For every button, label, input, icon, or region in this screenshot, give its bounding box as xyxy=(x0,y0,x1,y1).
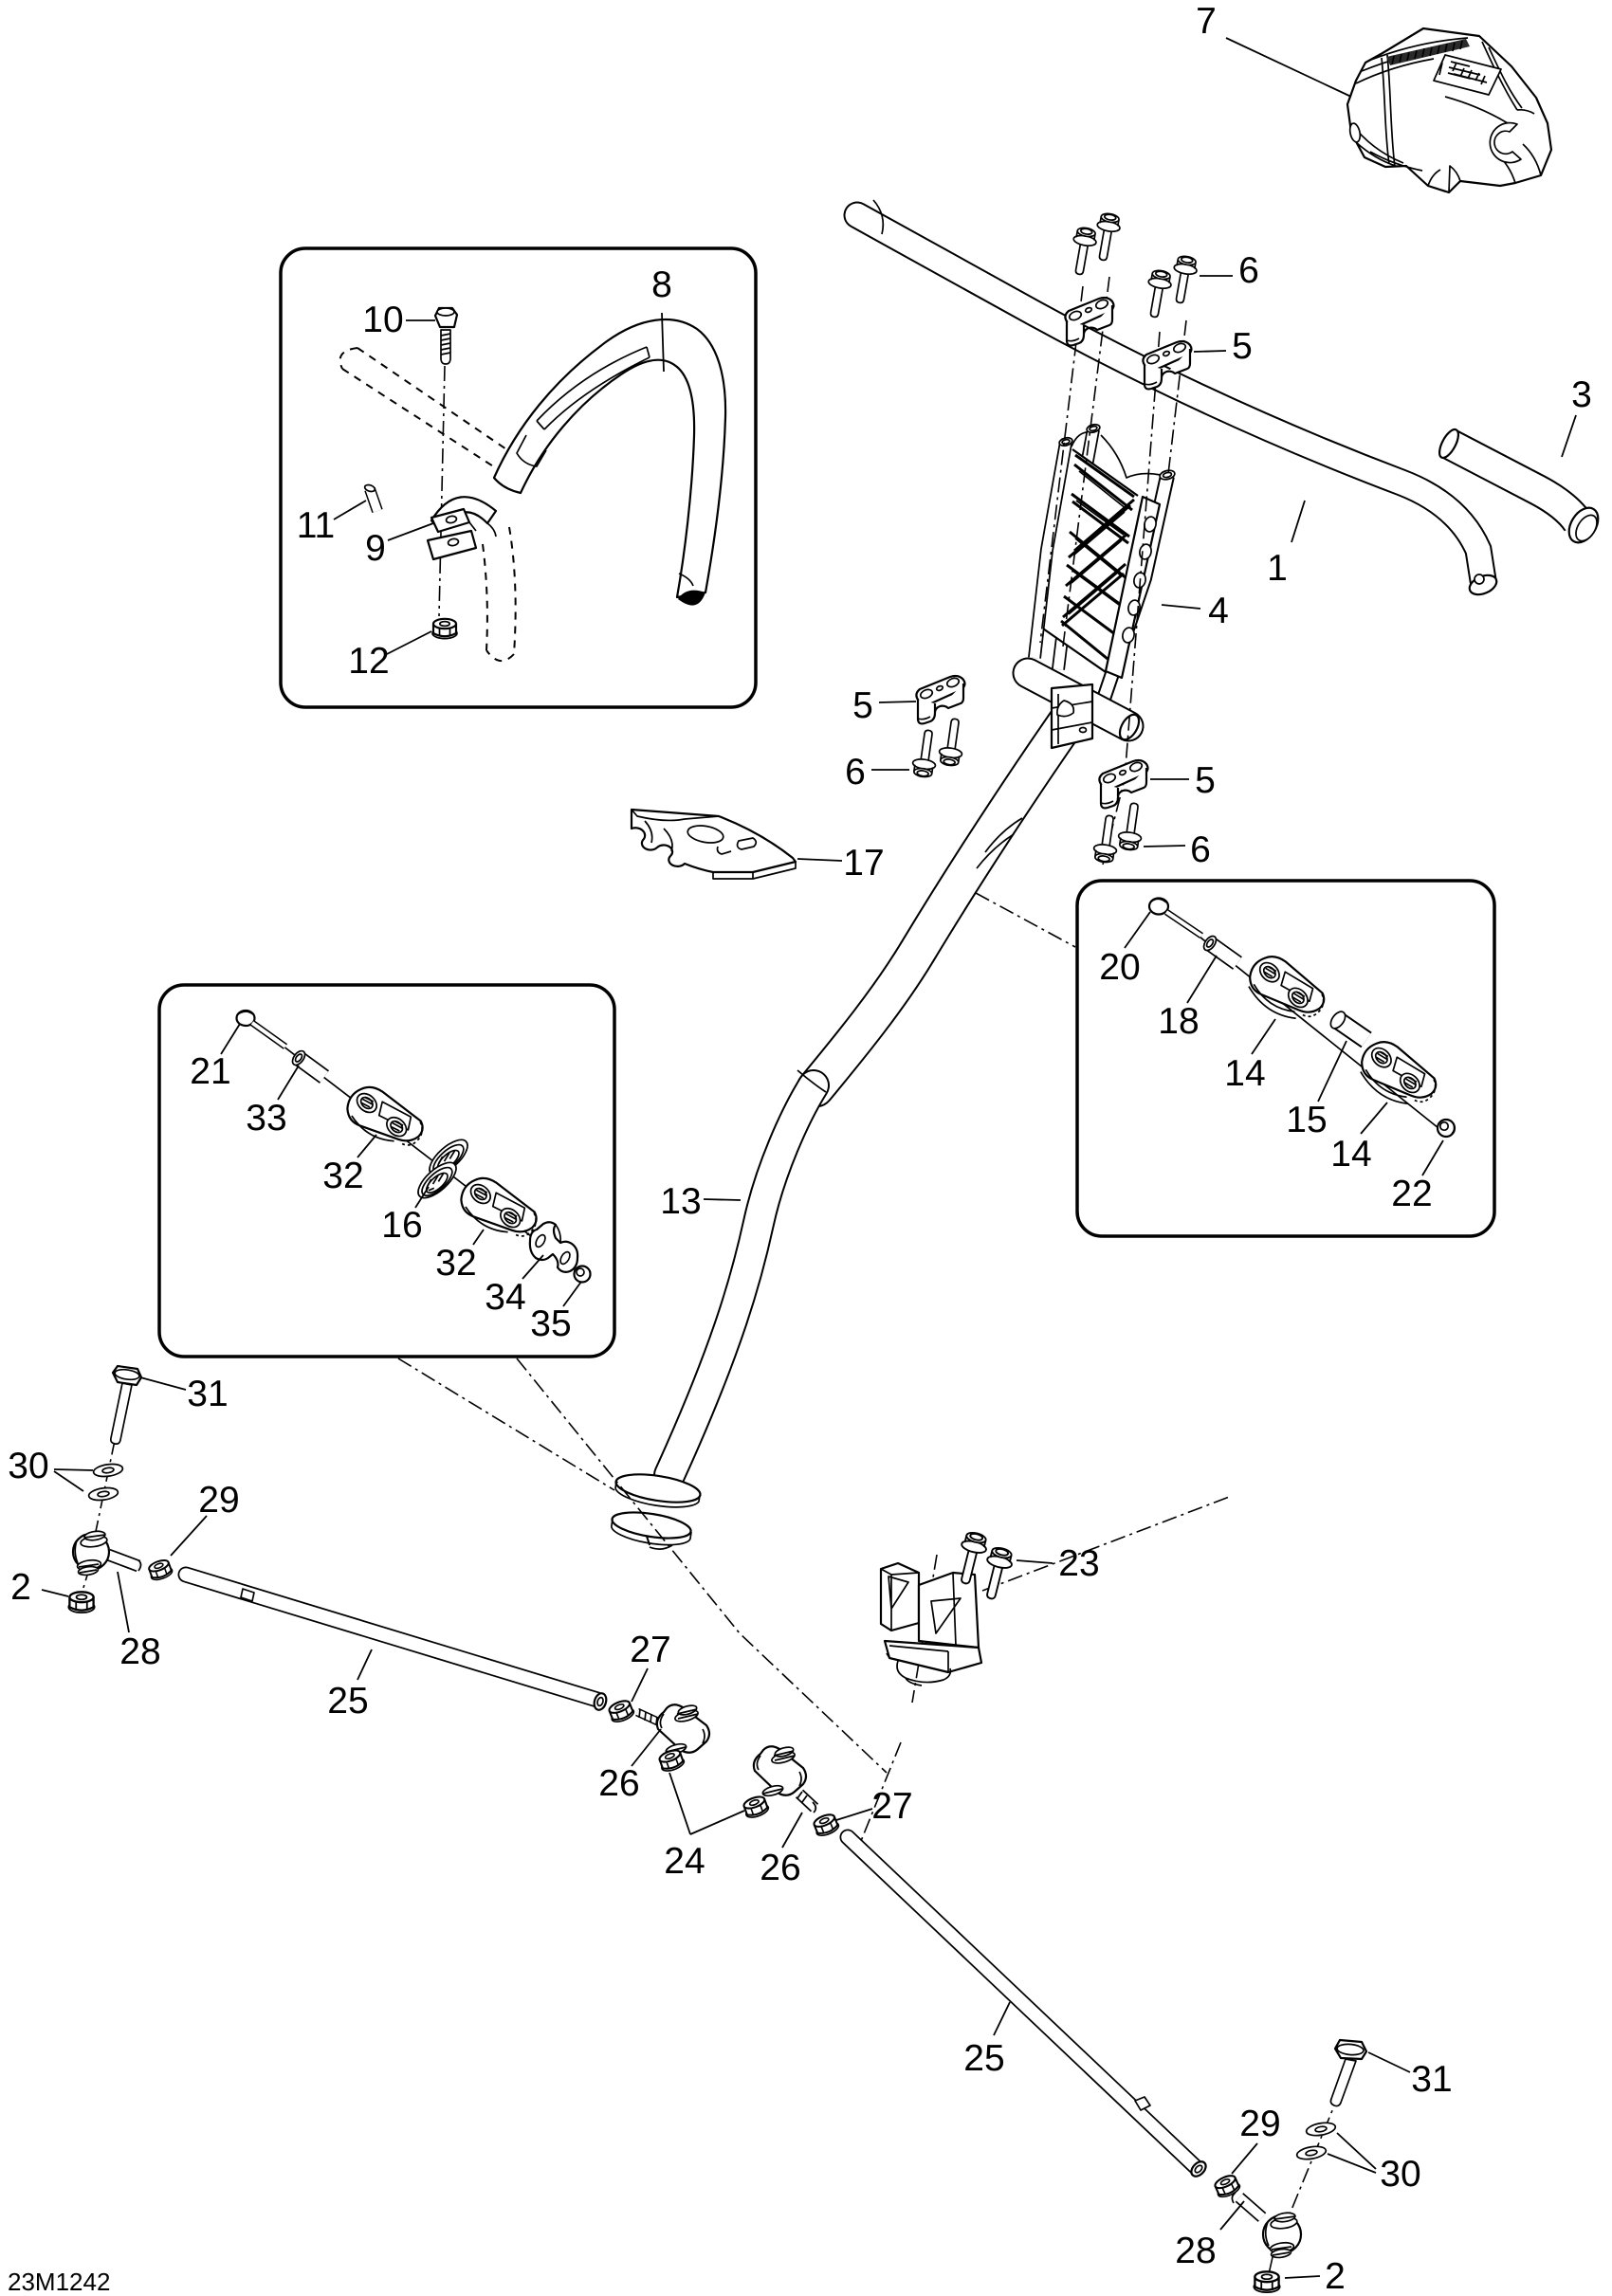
svg-text:32: 32 xyxy=(435,1243,476,1284)
svg-text:14: 14 xyxy=(1224,1053,1265,1094)
svg-text:25: 25 xyxy=(327,1681,368,1722)
svg-text:15: 15 xyxy=(1286,1100,1327,1140)
svg-text:8: 8 xyxy=(651,264,672,305)
svg-text:25: 25 xyxy=(963,2038,1004,2079)
svg-text:35: 35 xyxy=(530,1303,571,1344)
svg-text:23: 23 xyxy=(1058,1543,1099,1584)
svg-text:6: 6 xyxy=(1238,250,1259,291)
svg-text:23M1242: 23M1242 xyxy=(8,2268,110,2296)
svg-text:27: 27 xyxy=(871,1786,912,1827)
svg-text:4: 4 xyxy=(1208,591,1229,631)
svg-text:2: 2 xyxy=(1325,2256,1346,2296)
svg-text:29: 29 xyxy=(198,1480,239,1521)
svg-text:17: 17 xyxy=(843,843,884,884)
svg-text:30: 30 xyxy=(8,1446,48,1486)
svg-text:33: 33 xyxy=(246,1098,286,1139)
svg-text:29: 29 xyxy=(1239,2104,1280,2144)
svg-text:24: 24 xyxy=(664,1841,705,1882)
svg-text:3: 3 xyxy=(1571,374,1592,415)
svg-text:21: 21 xyxy=(190,1051,230,1092)
svg-text:26: 26 xyxy=(598,1763,639,1804)
svg-text:7: 7 xyxy=(1196,1,1217,42)
svg-text:31: 31 xyxy=(187,1374,228,1414)
svg-text:11: 11 xyxy=(297,505,336,546)
svg-text:12: 12 xyxy=(348,641,389,682)
svg-text:31: 31 xyxy=(1411,2059,1452,2100)
svg-text:13: 13 xyxy=(660,1181,701,1222)
svg-text:34: 34 xyxy=(485,1277,525,1318)
svg-text:26: 26 xyxy=(760,1848,800,1888)
svg-text:6: 6 xyxy=(845,752,866,793)
svg-text:2: 2 xyxy=(10,1567,31,1608)
svg-text:5: 5 xyxy=(1232,326,1253,367)
svg-text:30: 30 xyxy=(1380,2154,1420,2195)
svg-text:5: 5 xyxy=(1195,760,1216,801)
svg-text:20: 20 xyxy=(1099,947,1140,988)
svg-text:1: 1 xyxy=(1267,548,1288,589)
svg-text:27: 27 xyxy=(630,1630,670,1670)
svg-text:28: 28 xyxy=(119,1631,160,1672)
svg-text:18: 18 xyxy=(1158,1001,1199,1042)
svg-text:22: 22 xyxy=(1391,1174,1432,1214)
svg-text:9: 9 xyxy=(365,528,386,569)
svg-text:14: 14 xyxy=(1330,1134,1371,1175)
svg-text:5: 5 xyxy=(852,685,873,726)
svg-text:10: 10 xyxy=(362,300,403,340)
svg-text:16: 16 xyxy=(381,1205,422,1246)
svg-text:32: 32 xyxy=(322,1156,363,1196)
svg-text:6: 6 xyxy=(1190,829,1211,870)
svg-text:28: 28 xyxy=(1175,2231,1216,2271)
